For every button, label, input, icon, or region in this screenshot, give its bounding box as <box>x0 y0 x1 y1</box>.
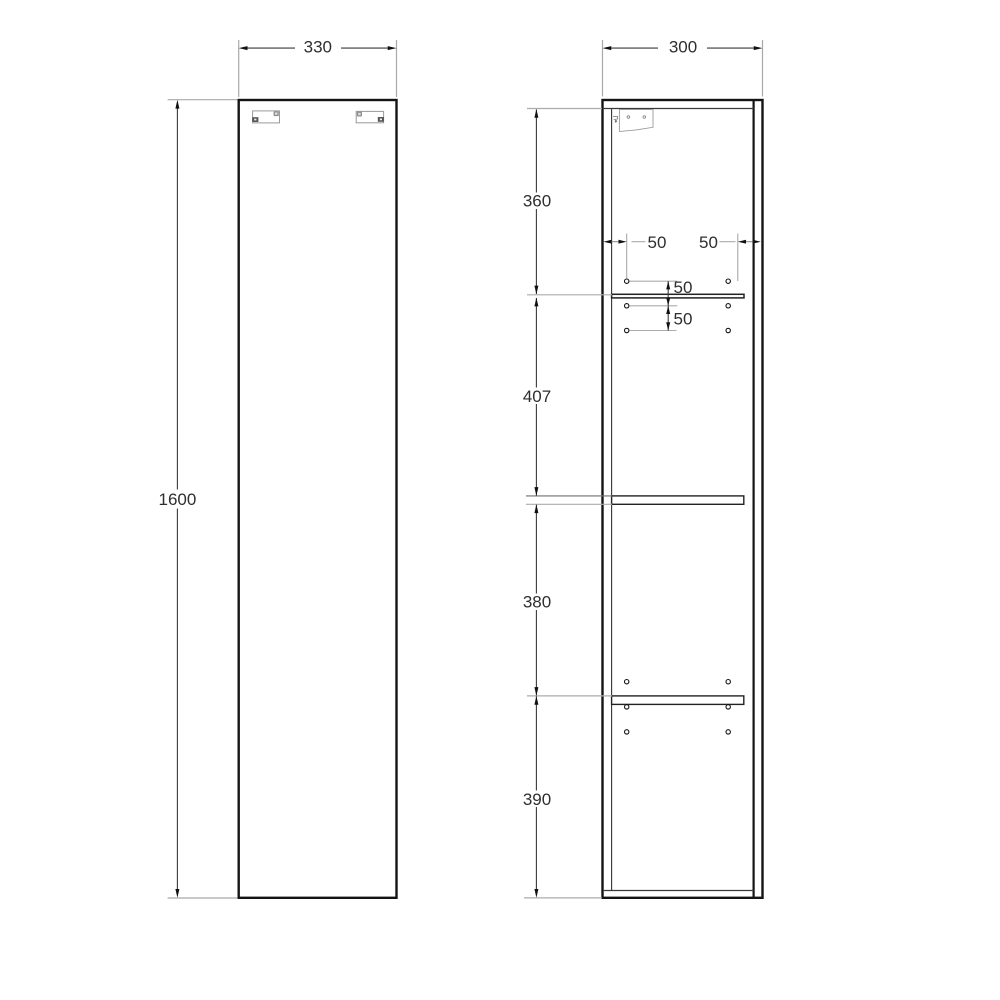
svg-text:50: 50 <box>674 278 693 297</box>
svg-text:390: 390 <box>523 790 551 809</box>
svg-text:407: 407 <box>523 387 551 406</box>
svg-text:1600: 1600 <box>158 490 196 509</box>
svg-text:300: 300 <box>669 37 697 56</box>
svg-text:330: 330 <box>304 37 332 56</box>
svg-text:50: 50 <box>699 233 718 252</box>
svg-text:380: 380 <box>523 592 551 611</box>
svg-text:50: 50 <box>648 233 667 252</box>
svg-text:360: 360 <box>523 192 551 211</box>
svg-text:50: 50 <box>674 310 693 329</box>
